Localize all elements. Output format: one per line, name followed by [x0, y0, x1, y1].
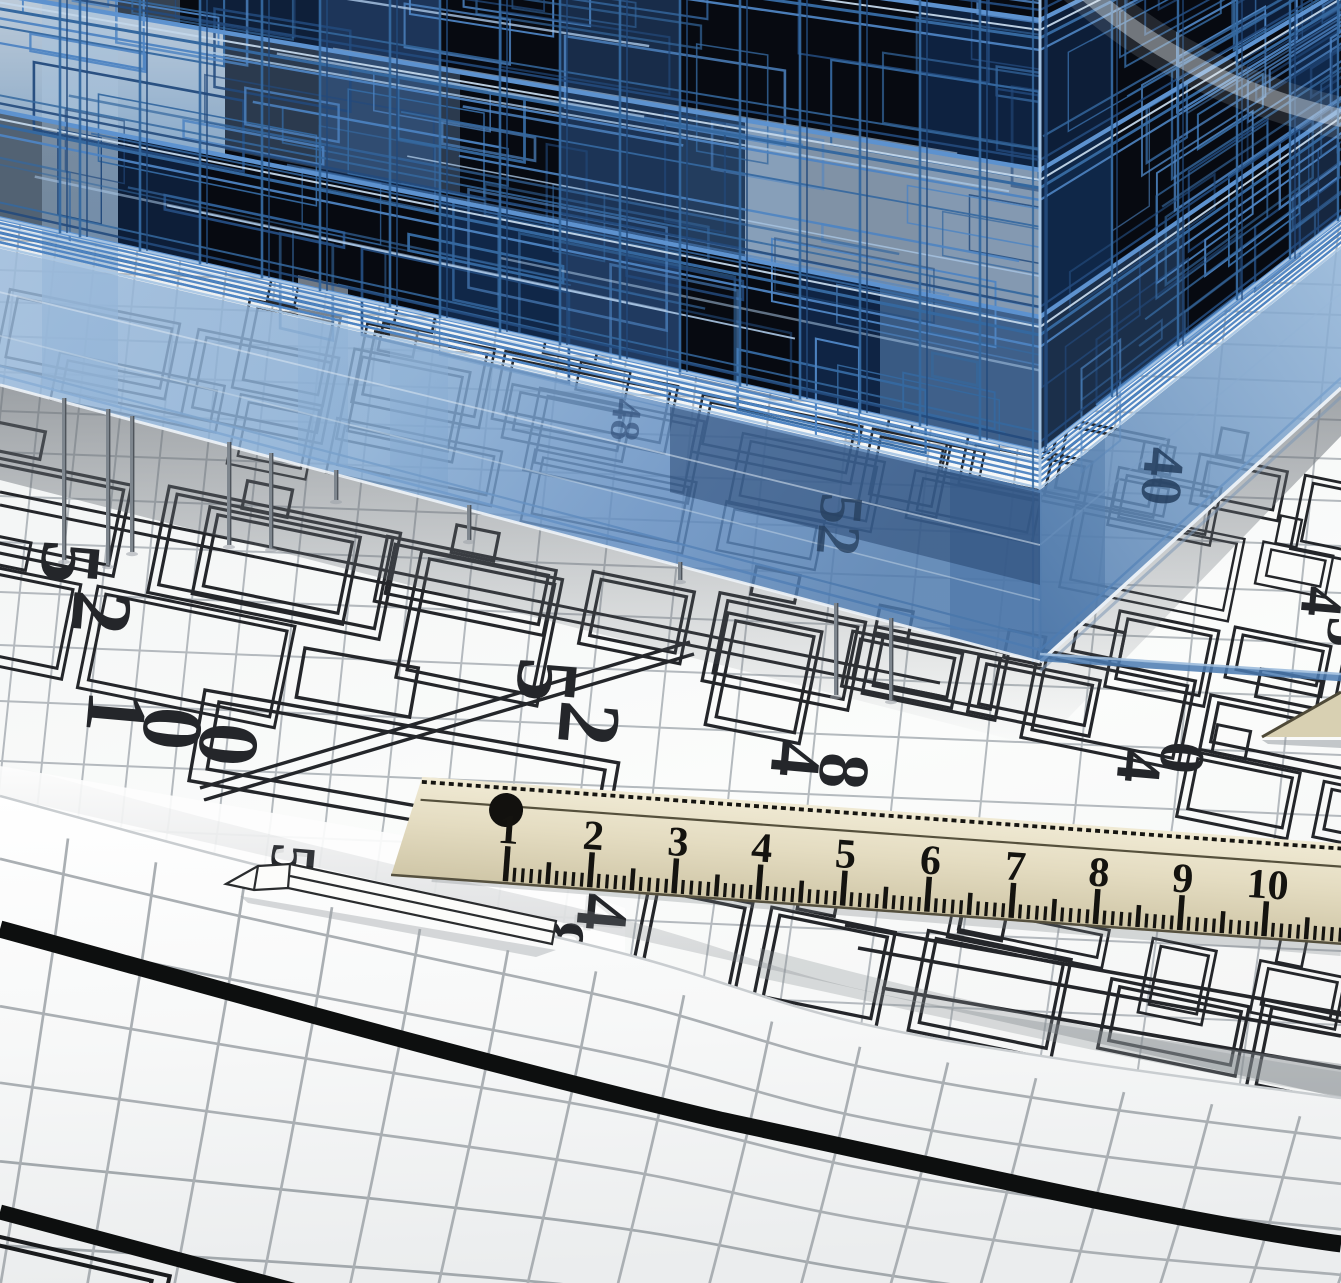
svg-text:2: 2	[581, 813, 605, 860]
svg-text:3: 3	[666, 819, 690, 866]
svg-text:52: 52	[803, 491, 876, 559]
svg-text:6: 6	[918, 837, 942, 884]
svg-text:0: 0	[179, 719, 278, 770]
svg-text:8: 8	[802, 750, 885, 793]
svg-text:8: 8	[1087, 849, 1111, 896]
svg-text:4: 4	[1288, 584, 1341, 620]
svg-text:2: 2	[538, 697, 638, 749]
svg-text:2: 2	[52, 587, 151, 638]
svg-text:9: 9	[1171, 855, 1195, 902]
svg-text:4: 4	[750, 825, 774, 872]
svg-text:48: 48	[600, 397, 649, 443]
svg-text:7: 7	[1003, 843, 1027, 890]
svg-text:0: 0	[1146, 739, 1220, 777]
svg-text:1: 1	[496, 807, 520, 854]
svg-text:10: 10	[1245, 861, 1290, 910]
svg-text:5: 5	[21, 537, 120, 588]
svg-text:40: 40	[1128, 445, 1198, 508]
svg-text:5: 5	[834, 831, 858, 878]
